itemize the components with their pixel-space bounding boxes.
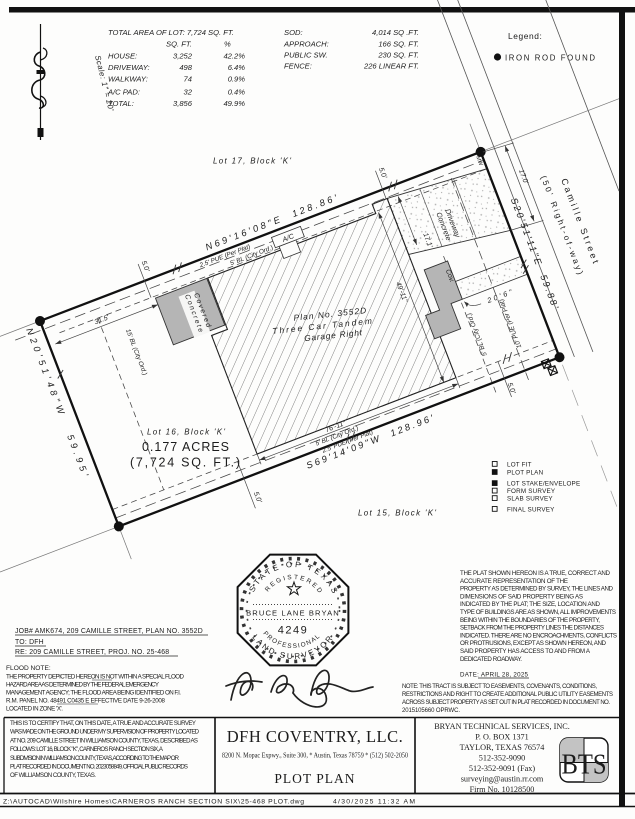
svg-text:0.177 ACRES: 0.177 ACRES	[142, 440, 229, 454]
svg-text:OF WILLIAMSON COUNTY, TEXAS.: OF WILLIAMSON COUNTY, TEXAS.	[10, 772, 96, 779]
svg-text:THE PROPERTY DEPICTED HEREON I: THE PROPERTY DEPICTED HEREON IS NOT WITH…	[6, 674, 185, 681]
svg-text:DEDICATED ROADWAY.: DEDICATED ROADWAY.	[460, 656, 522, 663]
svg-text:LAND SURVEYOR: LAND SURVEYOR	[250, 633, 334, 661]
svg-text:LOT FIT: LOT FIT	[507, 462, 532, 469]
svg-text:LOCATED IN ZONE 'X'.: LOCATED IN ZONE 'X'.	[6, 706, 63, 713]
svg-text:A/C PAD:: A/C PAD:	[107, 88, 140, 97]
svg-text:RE: 209 CAMILLE STREET, PROJ.: RE: 209 CAMILLE STREET, PROJ. NO. 25-468	[15, 649, 169, 656]
svg-text:ACCURATE REPRESENTATION OF THE: ACCURATE REPRESENTATION OF THE	[460, 578, 568, 585]
svg-text:ACROSS SUBJECT PROPERTY AS SET: ACROSS SUBJECT PROPERTY AS SET OUT IN PL…	[402, 700, 610, 706]
svg-text:0.4%: 0.4%	[228, 88, 246, 97]
svg-text:5.0': 5.0'	[506, 382, 517, 395]
svg-text:15' BL (City Ord.): 15' BL (City Ord.)	[124, 328, 148, 376]
svg-text:THIS IS TO CERTIFY THAT, ON TH: THIS IS TO CERTIFY THAT, ON THIS DATE, A…	[10, 720, 196, 727]
svg-text:THE PLAT SHOWN HEREON IS A TRU: THE PLAT SHOWN HEREON IS A TRUE, CORRECT…	[460, 570, 611, 577]
svg-text:RESTRICTIONS AND RIGHT TO CREA: RESTRICTIONS AND RIGHT TO CREATE ADDITIO…	[402, 692, 613, 698]
svg-text:NOTE: THIS TRACT IS SUBJECT TO: NOTE: THIS TRACT IS SUBJECT TO EASEMENTS…	[402, 684, 597, 690]
svg-text:TO: DFH: TO: DFH	[15, 639, 44, 646]
svg-text:SLAB SURVEY: SLAB SURVEY	[507, 496, 553, 503]
svg-text:DRIVEWAY:: DRIVEWAY:	[108, 63, 150, 72]
svg-text:PUBLIC SW.: PUBLIC SW.	[284, 51, 328, 60]
svg-text:SQ. FT.: SQ. FT.	[166, 40, 192, 49]
svg-text:226 LINEAR FT.: 226 LINEAR FT.	[363, 62, 419, 71]
svg-text:HOUSE:: HOUSE:	[108, 52, 137, 61]
svg-text:Lot 15, Block 'K': Lot 15, Block 'K'	[358, 509, 436, 518]
svg-text:TYPE OF BUILDINGS ARE AS SHOWN: TYPE OF BUILDINGS ARE AS SHOWN, ALL IMPR…	[460, 609, 616, 616]
svg-text:PLOT PLAN: PLOT PLAN	[507, 470, 544, 477]
svg-text:4249: 4249	[278, 625, 308, 637]
svg-text:AT NO. 209 CAMILLE STREET IN W: AT NO. 209 CAMILLE STREET IN WILLIAMSON …	[10, 737, 198, 744]
svg-text:TOTAL:: TOTAL:	[108, 99, 134, 108]
svg-text:74: 74	[184, 75, 192, 84]
svg-text:31.5': 31.5'	[94, 314, 111, 326]
svg-text:TOTAL AREA OF LOT: 7,724 SQ. F: TOTAL AREA OF LOT: 7,724 SQ. FT.	[108, 28, 234, 37]
svg-text:BRYAN TECHNICAL SERVICES, INC.: BRYAN TECHNICAL SERVICES, INC.	[434, 722, 570, 731]
svg-text:INDICATED. THERE ARE NO ENCROA: INDICATED. THERE ARE NO ENCROACHMENTS, C…	[460, 632, 617, 639]
svg-text:5' BL (City Ord.): 5' BL (City Ord.)	[466, 312, 489, 357]
svg-text:6.4%: 6.4%	[228, 63, 246, 72]
svg-text:INDICATED BY THE PLAT; THE SIZ: INDICATED BY THE PLAT; THE SIZE, LOCATIO…	[460, 601, 601, 608]
svg-text:166 SQ. FT.: 166 SQ. FT.	[378, 40, 419, 49]
svg-text:4/30/2025 11:32 AM: 4/30/2025 11:32 AM	[333, 799, 415, 806]
svg-text:SOD:: SOD:	[284, 28, 303, 37]
svg-text:PLAT RECORDED IN DOCUMENT NO.: PLAT RECORDED IN DOCUMENT NO. 2023058849…	[10, 764, 188, 771]
svg-text:FOLLOWS: LOT 16, BLOCK "K", CA: FOLLOWS: LOT 16, BLOCK "K", CARNEROS RAN…	[10, 746, 164, 753]
svg-text:BEING WITHIN THE BOUNDARIES OF: BEING WITHIN THE BOUNDARIES OF THE PROPE…	[460, 617, 600, 624]
svg-text:%: %	[224, 40, 231, 49]
svg-text:Lot 17, Block 'K': Lot 17, Block 'K'	[213, 157, 291, 166]
svg-text:3,252: 3,252	[173, 52, 193, 61]
svg-text:Legend:: Legend:	[508, 31, 542, 41]
svg-text:DATE: APRIL 28, 2025: DATE: APRIL 28, 2025	[460, 672, 529, 679]
svg-text:LOT STAKE/ENVELOPE: LOT STAKE/ENVELOPE	[507, 481, 580, 488]
svg-text:Z:\AUTOCAD\Wilshire Homes\CARN: Z:\AUTOCAD\Wilshire Homes\CARNEROS RANCH…	[3, 799, 304, 806]
svg-text:498: 498	[179, 63, 192, 72]
svg-text:R.M. PANEL NO. 48491 C0435 E E: R.M. PANEL NO. 48491 C0435 E EFFECTIVE D…	[6, 698, 166, 705]
svg-text:FENCE:: FENCE:	[284, 62, 312, 71]
svg-text:FINAL SURVEY: FINAL SURVEY	[507, 507, 555, 514]
svg-text:surveying@austin.rr.com: surveying@austin.rr.com	[461, 775, 544, 784]
svg-text:OR PROTRUSIONS, EXCEPT AS SHOW: OR PROTRUSIONS, EXCEPT AS SHOWN HEREON, …	[460, 640, 607, 647]
svg-text:WAS MADE ON THE GROUND UNDER M: WAS MADE ON THE GROUND UNDER MY SUPERVIS…	[10, 729, 200, 736]
svg-text:BTS: BTS	[562, 749, 607, 781]
svg-text:10' PUE (Per Plat): 10' PUE (Per Plat)	[498, 298, 523, 349]
svg-text:SUBDIVISION IN WILLIAMSON COUN: SUBDIVISION IN WILLIAMSON COUNTY, TEXAS,…	[10, 755, 180, 762]
svg-text:APPROACH:: APPROACH:	[283, 40, 329, 49]
svg-text:(7,724 SQ. FT.): (7,724 SQ. FT.)	[130, 456, 240, 470]
svg-text:49.9%: 49.9%	[223, 99, 245, 108]
svg-text:SAID PROPERTY HAS ACCESS TO AN: SAID PROPERTY HAS ACCESS TO AND FROM A	[460, 648, 591, 655]
svg-text:P. O. BOX 1371: P. O. BOX 1371	[475, 733, 528, 742]
svg-text:230 SQ. FT.: 230 SQ. FT.	[377, 51, 419, 60]
svg-text:MANAGEMENT AGENCY; THE FLOOD A: MANAGEMENT AGENCY; THE FLOOD AREA BEING …	[6, 690, 181, 697]
svg-text:BRUCE LANE BRYAN: BRUCE LANE BRYAN	[246, 609, 340, 618]
svg-text:8200 N. Mopac Expwy., Suite 30: 8200 N. Mopac Expwy., Suite 300, * Austi…	[222, 751, 408, 760]
svg-text:32: 32	[184, 88, 193, 97]
svg-text:JOB# AMK674, 209 CAMILLE STREE: JOB# AMK674, 209 CAMILLE STREET, PLAN NO…	[15, 628, 203, 635]
svg-text:3,856: 3,856	[173, 99, 193, 108]
svg-text:2015105660 OPRWC.: 2015105660 OPRWC.	[402, 708, 460, 714]
svg-text:17.0': 17.0'	[517, 169, 529, 186]
svg-text:PROPERTY AS DETERMINED BY SURV: PROPERTY AS DETERMINED BY SURVEY, THE LI…	[460, 586, 614, 593]
svg-text:42.2%: 42.2%	[223, 52, 245, 61]
svg-text:0.9%: 0.9%	[228, 75, 246, 84]
svg-text:DFH COVENTRY, LLC.: DFH COVENTRY, LLC.	[227, 727, 403, 746]
svg-text:HAZARD AREA AS DETERMINED BY T: HAZARD AREA AS DETERMINED BY THE FEDERAL…	[6, 682, 159, 689]
svg-text:DIMENSIONS OF SAID PROPERTY BE: DIMENSIONS OF SAID PROPERTY BEING AS	[460, 593, 583, 600]
svg-text:FORM SURVEY: FORM SURVEY	[507, 488, 556, 495]
svg-text:512-352-9090: 512-352-9090	[479, 754, 525, 763]
svg-text:TAYLOR, TEXAS 76574: TAYLOR, TEXAS 76574	[460, 743, 545, 752]
svg-text:Lot 16, Block 'K': Lot 16, Block 'K'	[147, 428, 225, 437]
svg-text:512-352-9091 (Fax): 512-352-9091 (Fax)	[469, 764, 535, 773]
svg-text:WALKWAY:: WALKWAY:	[108, 75, 148, 84]
svg-text:FLOOD NOTE:: FLOOD NOTE:	[6, 665, 51, 672]
svg-text:Firm No. 10128500: Firm No. 10128500	[470, 785, 535, 794]
svg-text:4,014 SQ .FT.: 4,014 SQ .FT.	[372, 28, 419, 37]
svg-text:PLOT PLAN: PLOT PLAN	[274, 771, 355, 786]
svg-text:N20'51'48"W 59.95': N20'51'48"W 59.95'	[24, 327, 90, 479]
svg-text:IRON ROD FOUND: IRON ROD FOUND	[505, 54, 595, 63]
svg-text:SETBACK FROM THE PROPERTY LINE: SETBACK FROM THE PROPERTY LINES THE DIST…	[460, 625, 604, 632]
